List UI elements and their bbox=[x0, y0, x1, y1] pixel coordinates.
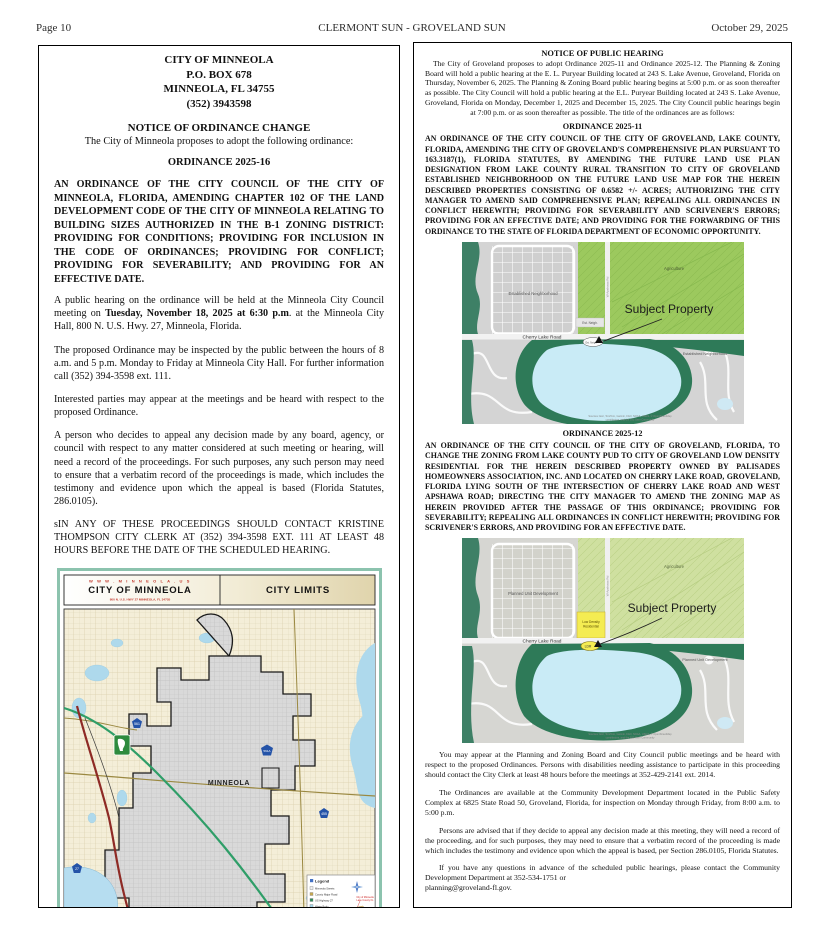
svg-text:455: 455 bbox=[321, 811, 327, 815]
inset-label-county: Lake County FL bbox=[356, 899, 374, 902]
agriculture-area bbox=[610, 242, 744, 334]
questions-text: If you have any questions in advance of … bbox=[425, 863, 780, 882]
ordinance-11-map-wrap: Established Neighborhood Agriculture W A… bbox=[425, 242, 780, 424]
groveland-notice-box: NOTICE OF PUBLIC HEARING The City of Gro… bbox=[413, 42, 792, 908]
minneola-appeal-paragraph: A person who decides to appeal any decis… bbox=[54, 429, 384, 508]
small-pond bbox=[717, 398, 733, 410]
map-attribution-1: Sources: Esri, TomTom, Garmin, FAO, NOAA… bbox=[588, 414, 672, 418]
minneola-hearing-paragraph: A public hearing on the ordinance will b… bbox=[54, 294, 384, 333]
minneola-city-limits-map: W W W . M I N N E O L A . U S CITY OF MI… bbox=[57, 568, 382, 908]
minneola-po-box: P.O. BOX 678 bbox=[54, 68, 384, 83]
minneola-notice-box: CITY OF MINNEOLA P.O. BOX 678 MINNEOLA, … bbox=[38, 45, 400, 908]
cherry-lake-road-label: Cherry Lake Road bbox=[522, 639, 561, 645]
small-pond bbox=[717, 717, 733, 729]
minneola-ordinance-title: AN ORDINANCE OF THE CITY COUNCIL OF THE … bbox=[54, 178, 384, 286]
minneola-notice-title: NOTICE OF ORDINANCE CHANGE bbox=[54, 122, 384, 134]
ldr-label-line2: Residential bbox=[583, 625, 599, 629]
apshawa-road-label: W Apshawa Rd bbox=[605, 276, 609, 297]
subject-property-label: Subject Property bbox=[624, 302, 713, 316]
ordinance-11-body: AN ORDINANCE OF THE CITY COUNCIL OF THE … bbox=[425, 134, 780, 237]
hearing-date-bold: Tuesday, November 18, 2025 at 6:30 p.m bbox=[105, 308, 289, 319]
city-limits-outparcel bbox=[262, 768, 279, 788]
agriculture-area bbox=[610, 538, 744, 638]
page-header: Page 10 CLERMONT SUN - GROVELAND SUN Oct… bbox=[36, 22, 788, 34]
cherry-lake-road-label: Cherry Lake Road bbox=[522, 335, 561, 341]
groveland-notice-title: NOTICE OF PUBLIC HEARING bbox=[425, 49, 780, 58]
agriculture-label: Agriculture bbox=[663, 266, 684, 271]
apshawa-road-label: W Apshawa Rd bbox=[605, 576, 609, 597]
minneola-intro: The City of Minneola proposes to adopt t… bbox=[54, 136, 384, 147]
cherry-lake bbox=[532, 344, 681, 421]
minneola-interested-paragraph: Interested parties may appear at the mee… bbox=[54, 393, 384, 419]
map-attribution-1: Sources: Esri, TomTom, Garmin, FAO, NOAA… bbox=[588, 732, 672, 736]
ldr-pill-label: LDR bbox=[584, 645, 591, 649]
est-neigh-small-label: Est. Neigh. bbox=[582, 321, 598, 325]
cherry-lake bbox=[532, 650, 681, 732]
subject-property-label: Subject Property bbox=[627, 601, 716, 615]
map-city-title: CITY OF MINNEOLA bbox=[88, 585, 191, 596]
map-city-address: 800 N. U.S. HWY 27 MINNEOLA, FL 34755 bbox=[109, 597, 170, 601]
minneola-inspect-paragraph: The proposed Ordinance may be inspected … bbox=[54, 344, 384, 383]
publication-title: CLERMONT SUN - GROVELAND SUN bbox=[36, 22, 788, 34]
ordinance-11-heading: ORDINANCE 2025-11 bbox=[425, 122, 780, 131]
ordinance-12-heading: ORDINANCE 2025-12 bbox=[425, 429, 780, 438]
groveland-questions-paragraph: If you have any questions in advance of … bbox=[425, 863, 780, 893]
groveland-available-paragraph: The Ordinances are available at the Comm… bbox=[425, 788, 780, 818]
ordinance-12-map: Planned Unit Development Agriculture W A… bbox=[462, 538, 744, 743]
ordinance-12-map-wrap: Planned Unit Development Agriculture W A… bbox=[425, 538, 780, 743]
groveland-appeal-paragraph: Persons are advised that if they decide … bbox=[425, 826, 780, 856]
ordinance-12-body: AN ORDINANCE OF THE CITY COUNCIL OF THE … bbox=[425, 441, 780, 533]
planning-email: planning@groveland-fl.gov. bbox=[425, 883, 780, 893]
bottom-pud-label: Planned Unit Development bbox=[682, 658, 728, 662]
ordinance-11-map: Established Neighborhood Agriculture W A… bbox=[462, 242, 744, 424]
svg-text:561: 561 bbox=[134, 721, 140, 725]
pud-label: Planned Unit Development bbox=[508, 591, 559, 596]
map-legend: Legend Minneola Streets County Major Roa… bbox=[307, 875, 375, 908]
legend-item-0: Minneola Streets bbox=[315, 886, 335, 890]
cherry-lake-road bbox=[462, 334, 744, 340]
agriculture-label: Agriculture bbox=[663, 564, 684, 569]
map-website-text: W W W . M I N N E O L A . U S bbox=[88, 578, 190, 583]
map-attribution-2: contributors, and the GIS User Community bbox=[605, 736, 655, 740]
minneola-city-label: MINNEOLA bbox=[207, 780, 249, 787]
svg-text:27: 27 bbox=[75, 866, 79, 870]
minneola-contact-paragraph: sIN ANY OF THESE PROCEEDINGS SHOULD CONT… bbox=[54, 518, 384, 557]
legend-item-3: Water Body bbox=[315, 904, 329, 908]
minneola-phone: (352) 3943598 bbox=[54, 97, 384, 112]
neighborhood-label: Established Neighborhood bbox=[508, 291, 558, 296]
bottom-neighborhood-label: Established Neighborhood bbox=[682, 352, 727, 356]
turnpike-shield-icon bbox=[114, 735, 130, 755]
newspaper-page: Page 10 CLERMONT SUN - GROVELAND SUN Oct… bbox=[0, 0, 816, 945]
minneola-map-wrap: W W W . M I N N E O L A . U S CITY OF MI… bbox=[54, 568, 384, 908]
minneola-city-state: MINNEOLA, FL 34755 bbox=[54, 82, 384, 97]
neighborhood-block bbox=[492, 246, 574, 334]
minneola-org-name: CITY OF MINNEOLA bbox=[54, 53, 384, 68]
map-limits-title: CITY LIMITS bbox=[265, 585, 329, 596]
legend-item-2: US Highway 27 bbox=[315, 898, 333, 902]
minneola-ordinance-number: ORDINANCE 2025-16 bbox=[54, 157, 384, 168]
groveland-appear-paragraph: You may appear at the Planning and Zonin… bbox=[425, 750, 780, 780]
svg-text:561A: 561A bbox=[263, 748, 271, 752]
ldr-label-line1: Low Density bbox=[582, 620, 600, 624]
legend-title: Legend bbox=[315, 878, 330, 883]
legend-item-1: County Major Road bbox=[315, 892, 338, 896]
map-attribution-2: contributors, and the GIS User Community bbox=[605, 418, 655, 422]
groveland-intro: The City of Groveland proposes to adopt … bbox=[425, 59, 780, 117]
